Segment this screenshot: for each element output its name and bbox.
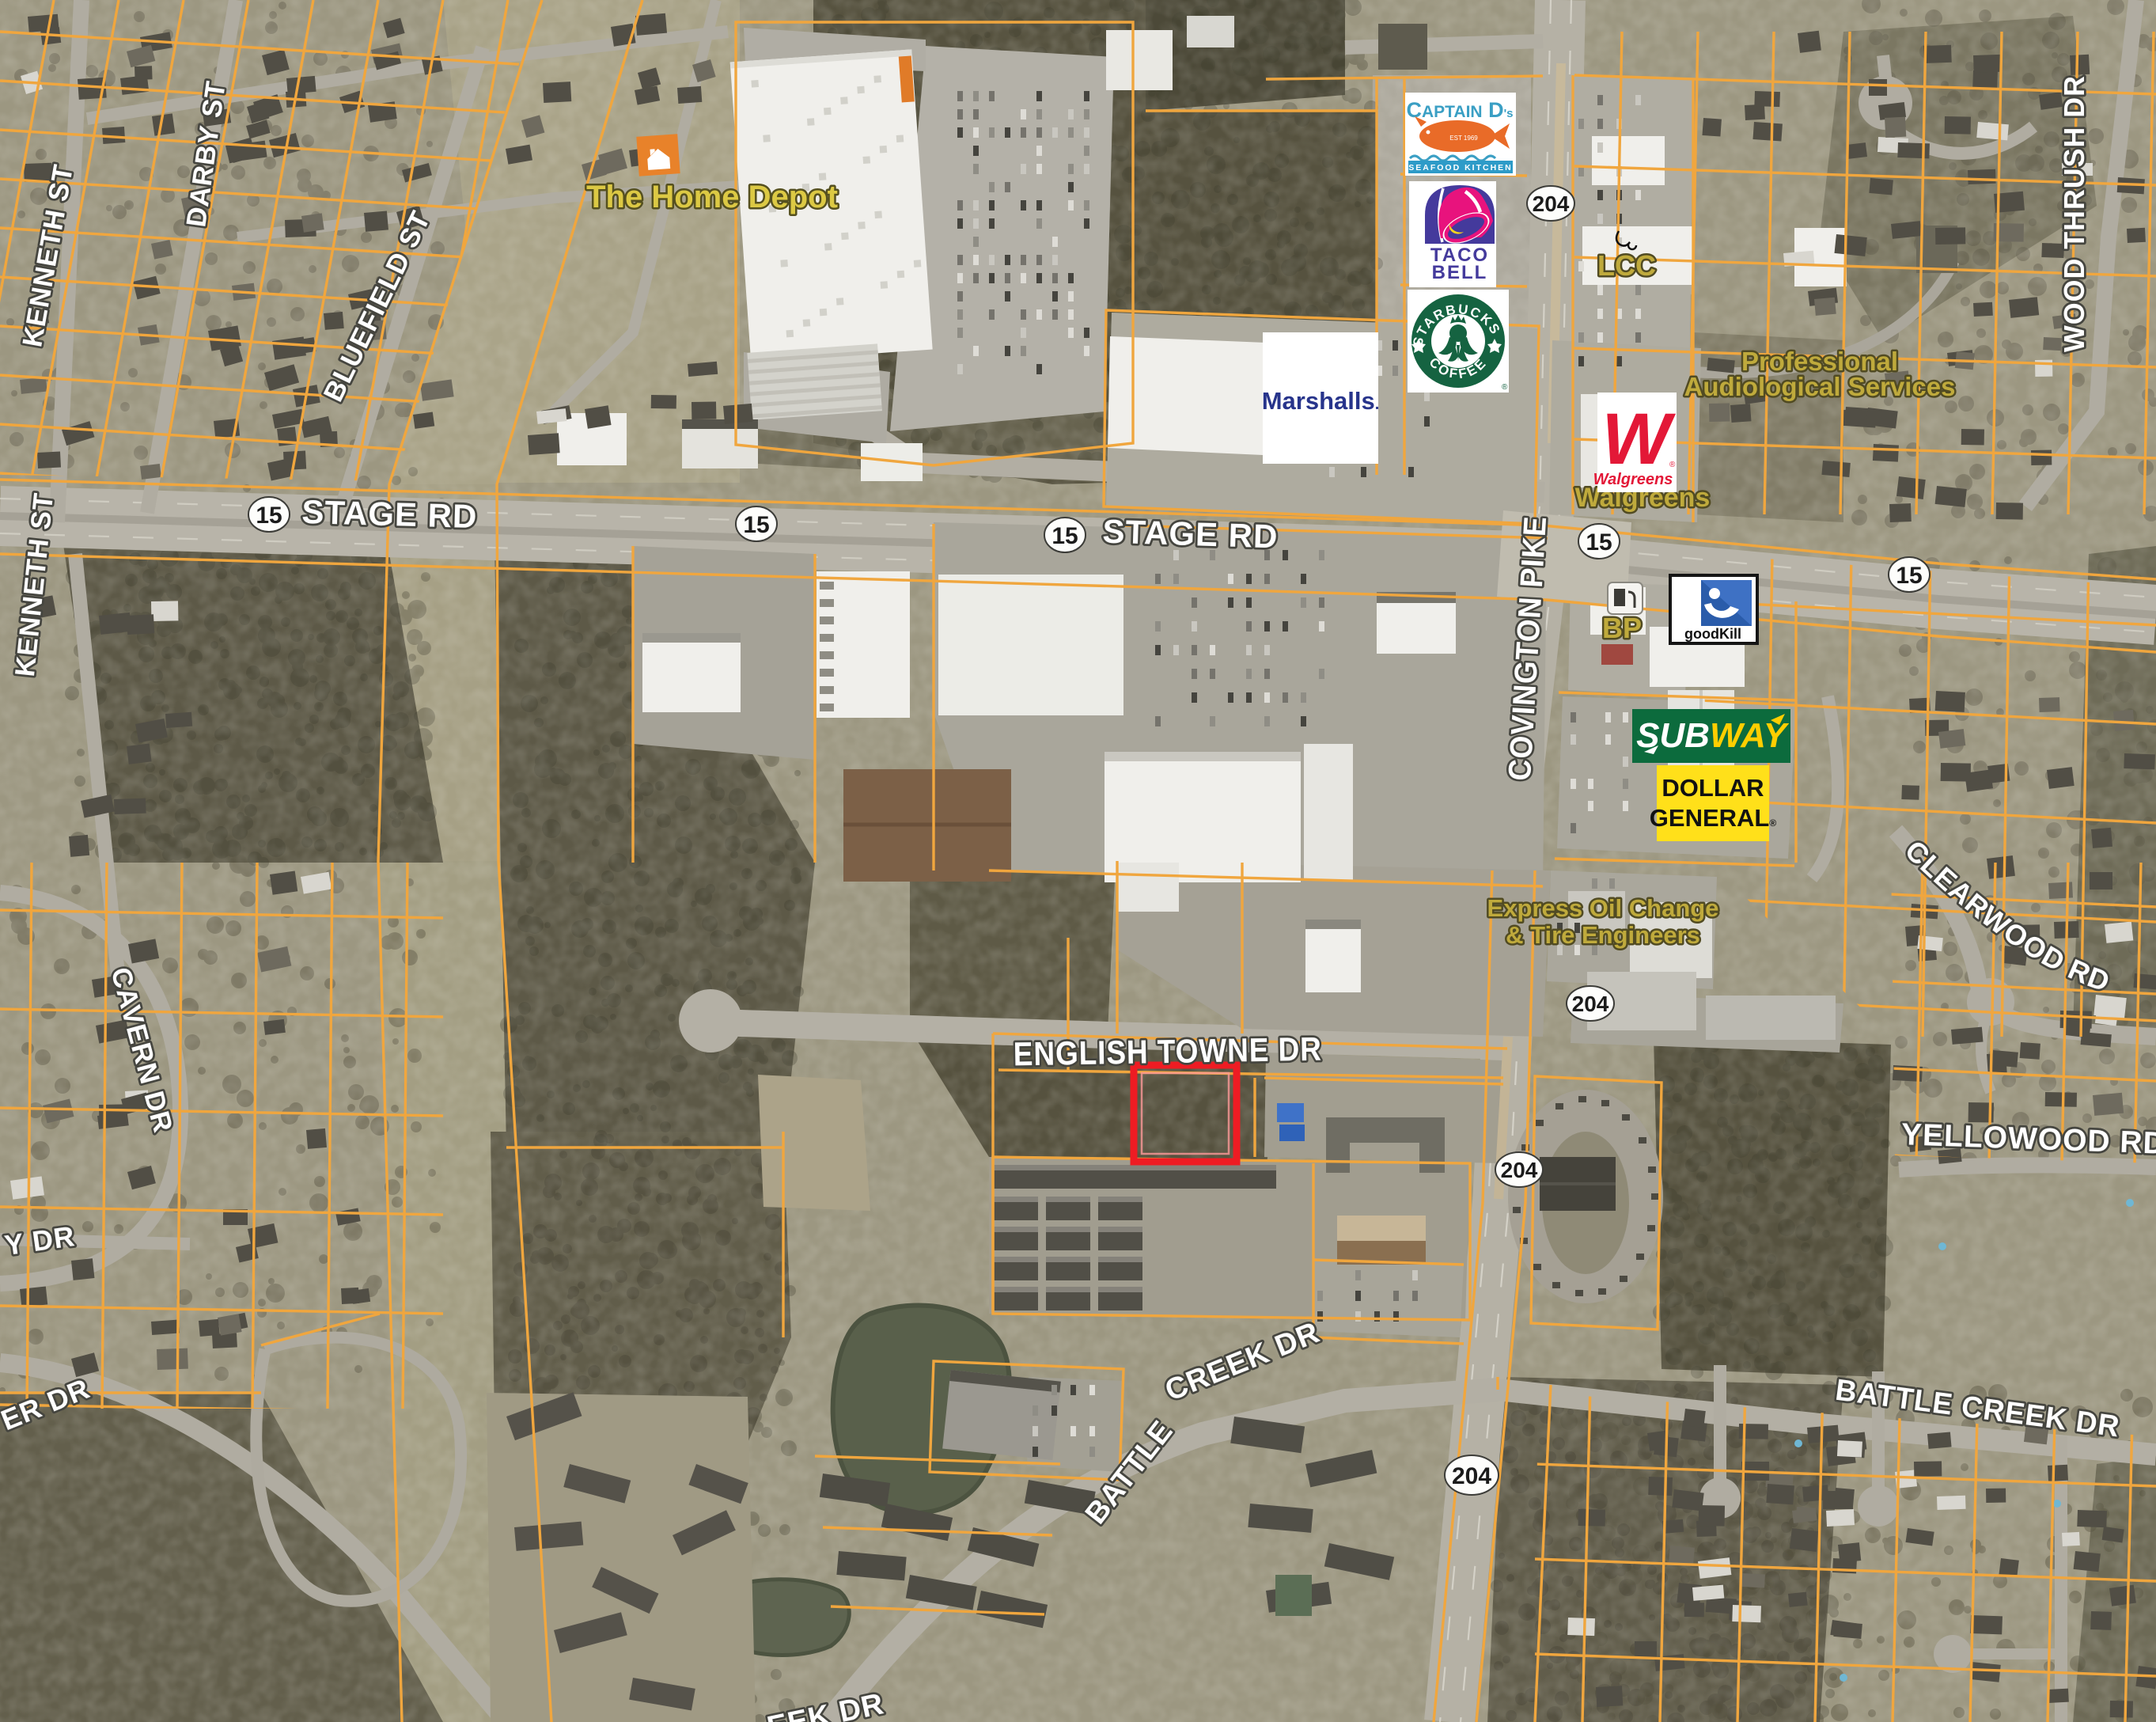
svg-text:W: W bbox=[1602, 399, 1677, 480]
svg-text:15: 15 bbox=[1051, 523, 1078, 549]
svg-text:15: 15 bbox=[256, 503, 282, 529]
svg-text:Express Oil Change: Express Oil Change bbox=[1487, 894, 1719, 922]
svg-text:GENERAL®: GENERAL® bbox=[1650, 804, 1777, 832]
svg-text:DOLLAR: DOLLAR bbox=[1662, 774, 1764, 802]
svg-text:®: ® bbox=[1502, 383, 1508, 392]
svg-text:SEAFOOD KITCHEN: SEAFOOD KITCHEN bbox=[1408, 163, 1513, 173]
svg-text:15: 15 bbox=[743, 512, 769, 538]
svg-text:Walgreens: Walgreens bbox=[1593, 471, 1673, 488]
svg-text:LCC: LCC bbox=[1597, 249, 1656, 282]
svg-text:Marshalls.: Marshalls. bbox=[1262, 387, 1380, 415]
svg-text:SUBWAY: SUBWAY bbox=[1636, 716, 1790, 755]
svg-text:BELL: BELL bbox=[1432, 262, 1488, 283]
svg-text:®: ® bbox=[1669, 461, 1676, 469]
svg-text:204: 204 bbox=[1452, 1463, 1491, 1489]
svg-text:Audiological Services: Audiological Services bbox=[1684, 372, 1956, 401]
svg-text:15: 15 bbox=[1586, 529, 1612, 556]
svg-text:EST 1969: EST 1969 bbox=[1449, 135, 1478, 142]
svg-text:204: 204 bbox=[1533, 192, 1570, 216]
svg-text:ENGLISH TOWNE DR: ENGLISH TOWNE DR bbox=[1013, 1030, 1322, 1073]
svg-text:BP: BP bbox=[1602, 612, 1642, 644]
svg-text:goodKill: goodKill bbox=[1684, 626, 1741, 642]
svg-text:WOOD THRUSH DR: WOOD THRUSH DR bbox=[2058, 75, 2090, 352]
svg-text:204: 204 bbox=[1501, 1158, 1538, 1182]
svg-text:& Tire Engineers: & Tire Engineers bbox=[1506, 921, 1700, 949]
svg-text:STAGE RD: STAGE RD bbox=[1102, 513, 1279, 556]
svg-text:The Home Depot: The Home Depot bbox=[586, 180, 838, 214]
svg-text:15: 15 bbox=[1896, 563, 1922, 589]
svg-text:STAGE RD: STAGE RD bbox=[301, 493, 478, 535]
svg-text:204: 204 bbox=[1572, 992, 1609, 1016]
